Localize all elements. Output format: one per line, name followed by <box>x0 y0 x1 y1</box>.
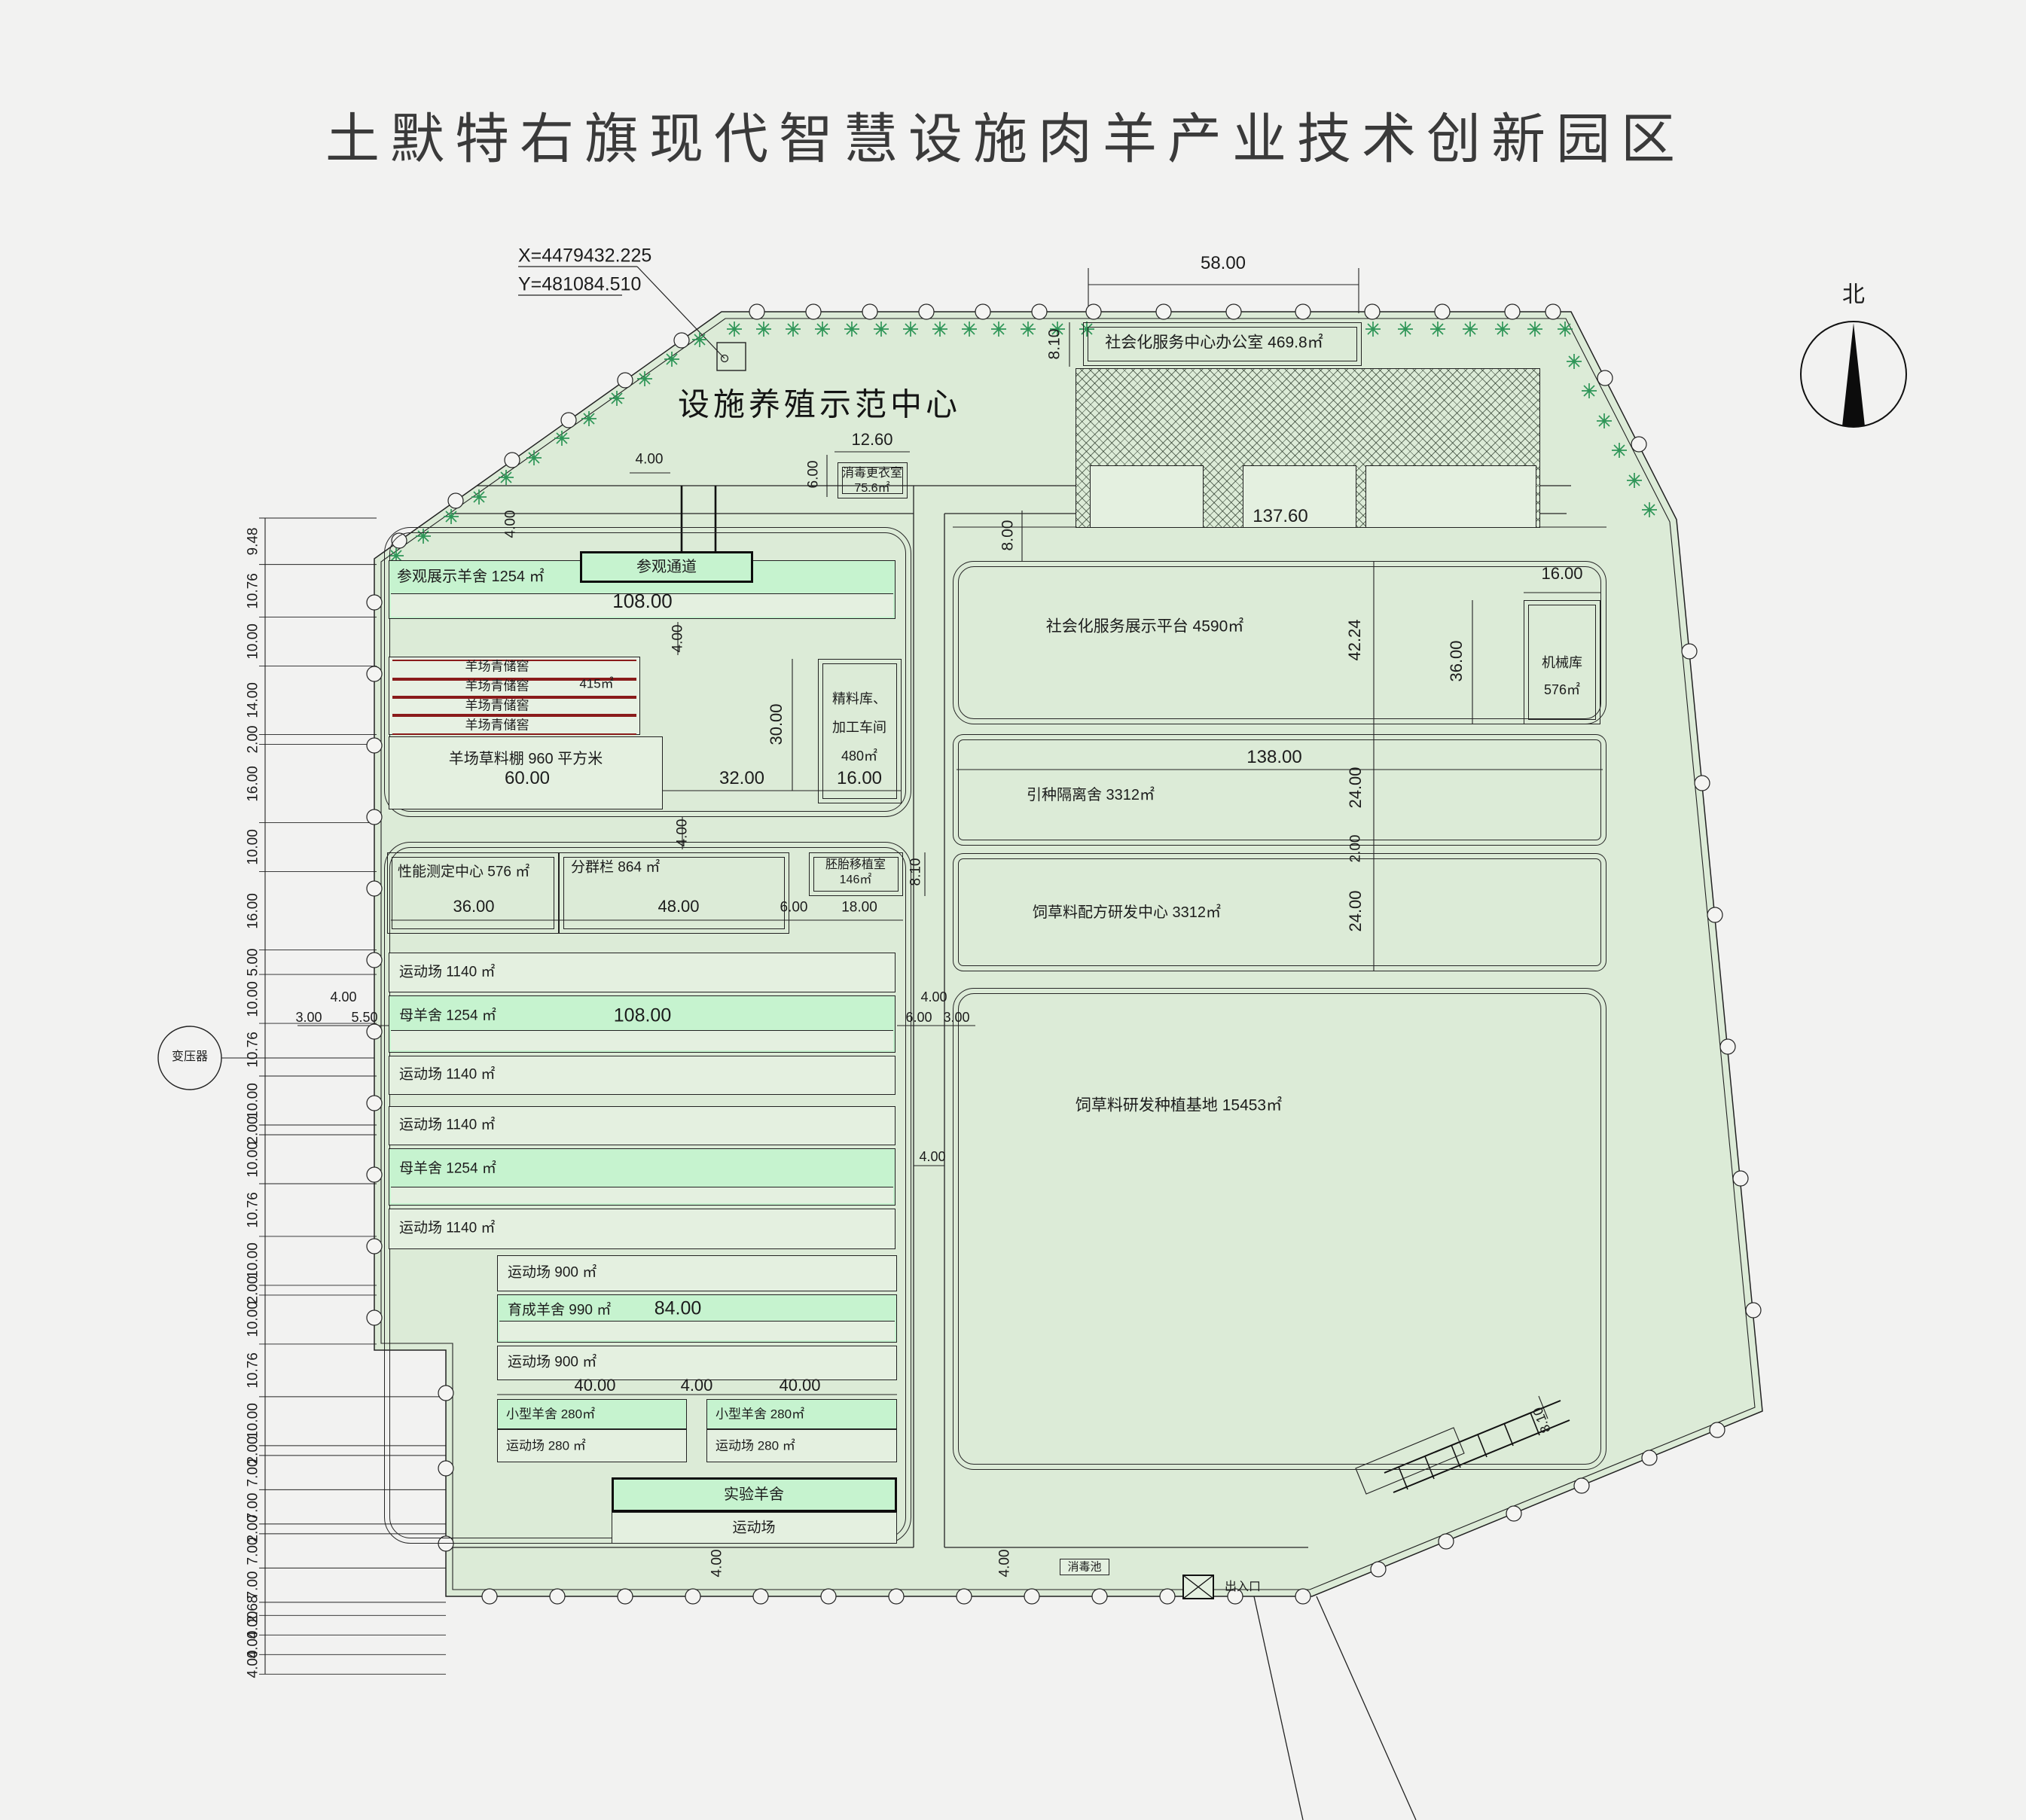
feed-mill-label-2: 加工车间 <box>832 721 886 734</box>
survey-point <box>561 413 576 428</box>
silage-label-2: 羊场青储窖 <box>465 680 529 693</box>
machinery-label-1: 机械库 <box>1542 656 1582 669</box>
silage-label-1: 羊场青储窖 <box>465 660 529 673</box>
runyard-280-1-label: 运动场 280 ㎡ <box>506 1440 586 1453</box>
dim-4-00-bottom-a: 4.00 <box>710 1550 725 1578</box>
tree-icon <box>554 431 569 446</box>
dim-32: 32.00 <box>719 770 764 788</box>
performance-label: 性能测定中心 576 ㎡ <box>398 865 529 880</box>
tree-icon <box>1627 473 1642 488</box>
tree-icon <box>1567 354 1582 369</box>
survey-point <box>1710 1422 1725 1437</box>
ewe-shed-2-label: 母羊舍 1254 ㎡ <box>399 1162 496 1176</box>
runyard-900-1-label: 运动场 900 ㎡ <box>508 1266 597 1280</box>
left-dim-17: 10.00 <box>246 1302 261 1338</box>
left-dim-3: 14.00 <box>246 682 261 718</box>
drawing-title: 土默特右旗现代智慧设施肉羊产业技术创新园区 <box>325 95 1686 174</box>
plaza-opening-3 <box>1365 465 1536 528</box>
left-dim-1: 10.76 <box>246 573 261 609</box>
left-dim-6: 10.00 <box>246 829 261 865</box>
survey-point <box>957 1589 972 1604</box>
tree-icon <box>1365 322 1381 337</box>
left-dim-0: 9.48 <box>246 527 261 555</box>
survey-point <box>1295 304 1310 319</box>
left-dim-19: 10.00 <box>246 1404 261 1440</box>
survey-point <box>1545 304 1561 319</box>
survey-point <box>1226 304 1241 319</box>
survey-point <box>1720 1039 1735 1054</box>
survey-point <box>753 1589 768 1604</box>
dim-3-00-l: 3.00 <box>295 1011 322 1024</box>
tree-icon <box>1527 322 1542 337</box>
survey-point <box>448 493 463 508</box>
tree-icon <box>499 470 514 485</box>
survey-point <box>674 333 689 348</box>
tree-icon <box>526 450 542 465</box>
survey-point <box>367 666 382 681</box>
runyard-label-3: 运动场 1140 ㎡ <box>399 1118 495 1133</box>
dim-137-60: 137.60 <box>1253 508 1307 526</box>
survey-point <box>1642 1450 1657 1465</box>
north-compass-icon <box>1801 322 1906 427</box>
survey-point <box>367 809 382 825</box>
dim-16-left: 16.00 <box>837 770 882 788</box>
tree-icon <box>1495 322 1510 337</box>
dim-6-00-embryo: 6.00 <box>780 901 808 915</box>
tree-icon <box>1612 443 1627 458</box>
survey-coordinate-x: X=4479432.225 <box>518 245 651 267</box>
dim-4-00-a: 4.00 <box>671 625 685 653</box>
left-dim-21: 7.00 <box>246 1459 261 1486</box>
tree-icon <box>1463 322 1478 337</box>
dim-30: 30.00 <box>768 703 785 745</box>
survey-point <box>1435 304 1450 319</box>
survey-point <box>367 1239 382 1254</box>
platform-label: 社会化服务展示平台 4590㎡ <box>1046 619 1244 635</box>
tree-icon <box>962 322 977 337</box>
left-dim-16: 2.00 <box>246 1276 261 1304</box>
survey-point <box>505 453 520 468</box>
survey-point <box>889 1589 904 1604</box>
experiment-runyard-label: 运动场 <box>732 1521 775 1535</box>
office-label: 社会化服务中心办公室 469.8㎡ <box>1105 335 1323 351</box>
survey-coordinate-y: Y=481084.510 <box>518 274 641 296</box>
tree-icon <box>664 352 679 367</box>
survey-point <box>367 1310 382 1325</box>
dim-6-00-r: 6.00 <box>905 1011 932 1024</box>
survey-point <box>367 738 382 753</box>
left-dim-9: 10.00 <box>246 981 261 1017</box>
left-dim-11: 10.00 <box>246 1083 261 1119</box>
survey-point <box>1086 304 1101 319</box>
tree-icon <box>991 322 1006 337</box>
survey-point <box>1506 1506 1521 1521</box>
runyard-label-1: 运动场 1140 ㎡ <box>399 965 495 980</box>
dim-2-00: 2.00 <box>1349 835 1363 863</box>
embryo-label-1: 胚胎移植室 <box>825 859 886 871</box>
tree-icon <box>692 332 707 347</box>
survey-point <box>862 304 877 319</box>
corridor-label: 参观通道 <box>636 559 697 575</box>
runyard-280-2-label: 运动场 280 ㎡ <box>716 1440 795 1453</box>
survey-point <box>618 373 633 388</box>
survey-point <box>1371 1562 1386 1577</box>
survey-point <box>1631 437 1646 452</box>
survey-point <box>367 1024 382 1039</box>
site-plan-canvas: 土默特右旗现代智慧设施肉羊产业技术创新园区 X=4479432.225 Y=48… <box>0 0 2026 1820</box>
dim-42-24: 42.24 <box>1347 619 1363 660</box>
dim-16-00: 16.00 <box>1541 566 1582 582</box>
dim-24-b: 24.00 <box>1347 890 1364 931</box>
survey-point <box>1695 776 1710 791</box>
left-dim-5: 16.00 <box>246 766 261 802</box>
feed-mill-label-3: 480㎡ <box>841 749 877 763</box>
silage-area: 415㎡ <box>579 678 613 691</box>
exit-road <box>1254 1596 1416 1820</box>
tree-icon <box>637 371 652 386</box>
tree-icon <box>1558 322 1573 337</box>
left-dim-15: 10.00 <box>246 1243 261 1279</box>
survey-point <box>367 1167 382 1182</box>
dim-18: 18.00 <box>841 901 877 915</box>
small-shed-2-label: 小型羊舍 280㎡ <box>716 1408 804 1421</box>
dim-84: 84.00 <box>654 1300 702 1319</box>
dim-4-00-cross-l: 4.00 <box>330 990 356 1004</box>
disinfect-room-area: 75.6㎡ <box>854 483 889 495</box>
pool-label: 消毒池 <box>1067 1562 1101 1573</box>
dim-4-00-corridor: 4.00 <box>636 453 664 467</box>
dim-5-50: 5.50 <box>351 1011 377 1024</box>
ewe-shed-1-label: 母羊舍 1254 ㎡ <box>399 1009 496 1023</box>
tree-icon <box>1021 322 1036 337</box>
tree-icon <box>1582 383 1597 398</box>
dim-108-ewe: 108.00 <box>614 1007 671 1026</box>
dim-4-00-b: 4.00 <box>676 819 690 847</box>
survey-point <box>1024 1589 1039 1604</box>
dim-60: 60.00 <box>505 770 550 788</box>
experiment-shed-label: 实验羊舍 <box>724 1487 784 1502</box>
dim-36: 36.00 <box>453 898 494 915</box>
tree-icon <box>609 391 624 406</box>
survey-point <box>975 304 990 319</box>
machinery-label-2: 576㎡ <box>1544 683 1580 697</box>
survey-point <box>1365 304 1380 319</box>
left-dim-24: 7.00 <box>246 1537 261 1565</box>
dim-4-00-bottom-b: 4.00 <box>998 1550 1012 1578</box>
dim-36-00: 36.00 <box>1448 640 1465 681</box>
survey-point <box>367 881 382 896</box>
dim-4-00-mid-r: 4.00 <box>919 1150 945 1163</box>
tree-icon <box>1398 322 1413 337</box>
dim-40-a: 40.00 <box>574 1377 615 1394</box>
dim-58: 58.00 <box>1201 255 1246 273</box>
dim-40-b: 40.00 <box>779 1377 820 1394</box>
survey-point <box>367 1096 382 1111</box>
tree-icon <box>1642 502 1657 517</box>
survey-point <box>1746 1303 1761 1318</box>
dim-4-00-cross-r: 4.00 <box>920 990 947 1004</box>
tree-icon <box>727 322 742 337</box>
dim-24-a: 24.00 <box>1347 767 1364 808</box>
survey-point <box>685 1589 700 1604</box>
left-dim-18: 10.76 <box>246 1352 261 1389</box>
survey-point <box>1092 1589 1107 1604</box>
survey-point <box>367 595 382 610</box>
dim-4-00-road-top: 4.00 <box>504 511 518 538</box>
survey-point <box>1733 1171 1748 1186</box>
survey-point <box>1707 907 1722 922</box>
left-dim-2: 10.00 <box>246 623 261 660</box>
survey-point <box>367 953 382 968</box>
plaza-opening-1 <box>1090 465 1204 528</box>
dim-48: 48.00 <box>658 898 699 915</box>
transformer-label: 变压器 <box>172 1051 208 1063</box>
field-label: 饲草料研发种植基地 15453㎡ <box>1076 1098 1282 1114</box>
tree-icon <box>815 322 830 337</box>
survey-point <box>1160 1589 1175 1604</box>
tree-icon <box>1430 322 1445 337</box>
runyard-label-4: 运动场 1140 ㎡ <box>399 1221 495 1236</box>
dim-8-10-office: 8.10 <box>1047 329 1063 360</box>
tree-icon <box>581 411 597 426</box>
survey-point <box>482 1589 497 1604</box>
survey-point <box>1574 1478 1589 1493</box>
pen-label: 分群栏 864 ㎡ <box>571 861 660 875</box>
dim-108-display: 108.00 <box>612 591 673 611</box>
survey-point <box>550 1589 565 1604</box>
dim-8-10-embryo: 8.10 <box>909 858 923 886</box>
survey-point <box>1682 644 1697 659</box>
survey-point <box>1032 304 1047 319</box>
dim-6-00-top: 6.00 <box>807 461 821 489</box>
ewe-shed-2 <box>389 1148 896 1206</box>
left-dim-4: 2.00 <box>246 726 261 754</box>
tree-icon <box>444 509 459 524</box>
left-dim-12: 2.00 <box>246 1116 261 1144</box>
survey-point <box>1505 304 1520 319</box>
isolation-label: 引种隔离舍 3312㎡ <box>1027 788 1155 803</box>
dim-8-00: 8.00 <box>1000 520 1016 551</box>
feed-mill-label-1: 精料库、 <box>832 692 886 706</box>
left-dim-29: 4.00 <box>246 1651 261 1678</box>
fence-planting-field <box>953 988 1606 1470</box>
hay-barn-label: 羊场草料棚 960 平方米 <box>449 751 603 767</box>
dim-4-mid: 4.00 <box>681 1377 713 1394</box>
survey-point <box>749 304 764 319</box>
survey-point <box>618 1589 633 1604</box>
embryo-label-2: 146㎡ <box>840 874 872 886</box>
dim-3-00-r: 3.00 <box>943 1011 969 1024</box>
dim-138: 138.00 <box>1246 748 1301 767</box>
runyard-label-2: 运动场 1140 ㎡ <box>399 1068 495 1082</box>
left-dim-10: 10.76 <box>246 1032 261 1068</box>
left-dim-13: 10.00 <box>246 1142 261 1178</box>
left-dim-8: 5.00 <box>246 948 261 976</box>
entrance-label: 出入口 <box>1225 1581 1261 1593</box>
small-shed-1-label: 小型羊舍 280㎡ <box>506 1408 595 1421</box>
survey-point <box>821 1589 836 1604</box>
tree-icon <box>756 322 771 337</box>
survey-point <box>1295 1589 1310 1604</box>
fence-service-platform <box>953 561 1606 724</box>
demo-center-title: 设施养殖示范中心 <box>678 380 961 425</box>
survey-point <box>1439 1534 1454 1549</box>
survey-point <box>919 304 934 319</box>
disinfect-room-name: 消毒更衣室 <box>842 468 902 480</box>
left-dim-14: 10.76 <box>246 1192 261 1228</box>
tree-icon <box>786 322 801 337</box>
tree-icon <box>471 489 487 505</box>
tree-icon <box>1597 413 1612 428</box>
survey-point <box>806 304 821 319</box>
north-label: 北 <box>1842 284 1865 306</box>
runyard-900-2-label: 运动场 900 ㎡ <box>508 1355 597 1370</box>
left-dim-7: 16.00 <box>246 893 261 929</box>
tree-icon <box>903 322 918 337</box>
survey-point <box>1156 304 1171 319</box>
tree-icon <box>874 322 889 337</box>
survey-point <box>1597 370 1613 386</box>
formula-label: 饲草料配方研发中心 3312㎡ <box>1033 905 1221 920</box>
silage-label-4: 羊场青储窖 <box>465 719 529 732</box>
silage-label-3: 羊场青储窖 <box>465 700 529 712</box>
growing-shed-label: 育成羊舍 990 ㎡ <box>508 1303 611 1318</box>
tree-icon <box>844 322 859 337</box>
tree-icon <box>932 322 947 337</box>
display-shed-label: 参观展示羊舍 1254 ㎡ <box>397 569 545 584</box>
dim-12-60: 12.60 <box>851 431 892 448</box>
